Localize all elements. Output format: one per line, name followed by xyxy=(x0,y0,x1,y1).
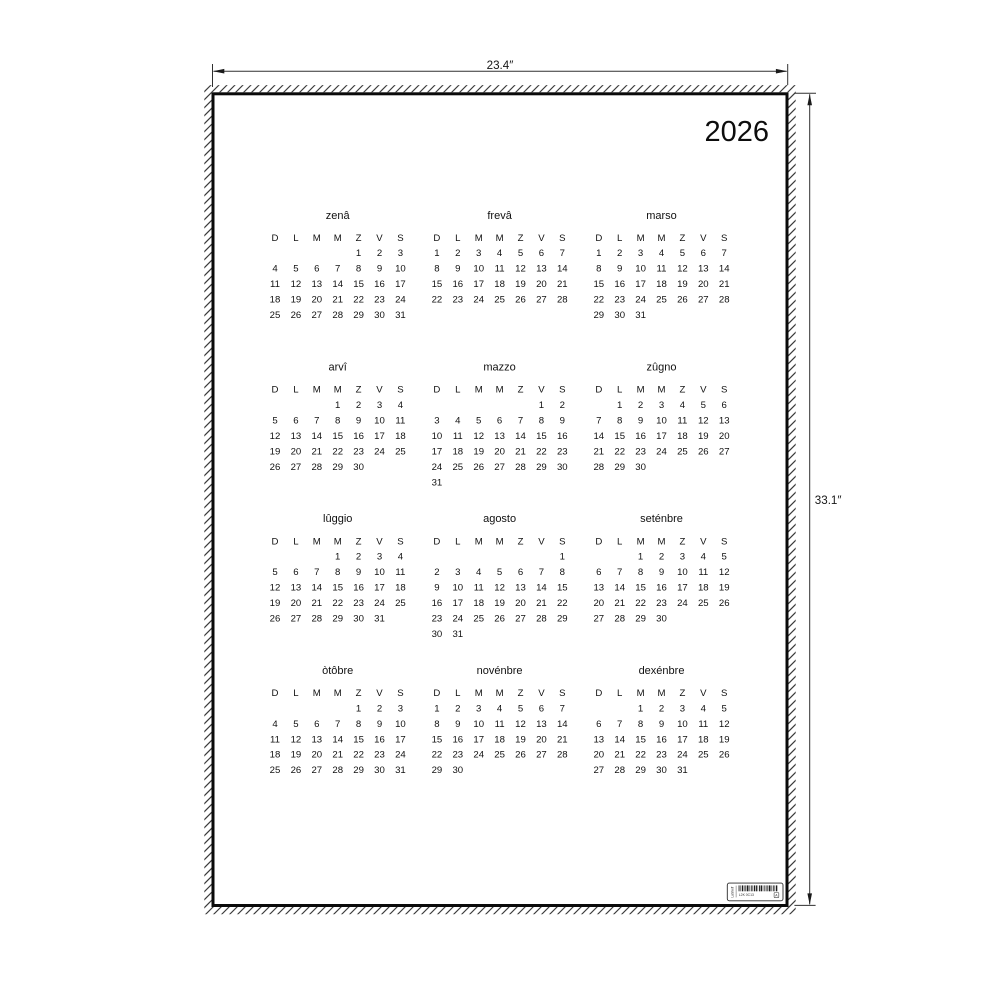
svg-text:13: 13 xyxy=(719,415,730,426)
svg-text:L: L xyxy=(455,385,461,396)
svg-text:22: 22 xyxy=(536,446,547,457)
svg-text:5: 5 xyxy=(722,552,727,563)
svg-text:D: D xyxy=(595,233,602,244)
svg-text:Z: Z xyxy=(679,233,685,244)
svg-text:V: V xyxy=(376,233,383,244)
svg-text:19: 19 xyxy=(515,279,526,290)
svg-text:V: V xyxy=(700,233,707,244)
svg-text:6: 6 xyxy=(596,719,601,730)
svg-text:S: S xyxy=(721,233,727,244)
svg-text:13: 13 xyxy=(536,719,547,730)
svg-text:12: 12 xyxy=(270,431,281,442)
svg-text:Z: Z xyxy=(356,233,362,244)
svg-text:25: 25 xyxy=(677,446,688,457)
svg-text:Z: Z xyxy=(356,385,362,396)
svg-text:Z: Z xyxy=(679,385,685,396)
svg-text:28: 28 xyxy=(536,614,547,625)
svg-text:16: 16 xyxy=(374,279,385,290)
svg-text:7: 7 xyxy=(314,415,319,426)
svg-text:25: 25 xyxy=(698,750,709,761)
svg-text:6: 6 xyxy=(314,264,319,275)
svg-text:marso: marso xyxy=(646,210,677,222)
svg-text:14: 14 xyxy=(515,431,526,442)
svg-text:4: 4 xyxy=(398,552,404,563)
svg-text:M: M xyxy=(475,385,483,396)
svg-text:8: 8 xyxy=(434,719,439,730)
svg-text:19: 19 xyxy=(473,446,484,457)
svg-text:10: 10 xyxy=(374,415,385,426)
svg-text:1: 1 xyxy=(539,400,544,411)
svg-text:L: L xyxy=(293,233,299,244)
svg-text:17: 17 xyxy=(395,734,406,745)
svg-text:5: 5 xyxy=(293,719,298,730)
svg-text:27: 27 xyxy=(311,310,322,321)
svg-text:23: 23 xyxy=(656,750,667,761)
svg-text:12: 12 xyxy=(291,734,302,745)
svg-text:19: 19 xyxy=(698,431,709,442)
svg-text:21: 21 xyxy=(614,750,625,761)
svg-text:24: 24 xyxy=(635,295,646,306)
svg-text:L: L xyxy=(617,536,623,547)
svg-text:22: 22 xyxy=(635,750,646,761)
svg-text:8: 8 xyxy=(539,415,544,426)
svg-text:D: D xyxy=(272,233,279,244)
svg-text:10: 10 xyxy=(374,567,385,578)
svg-text:16: 16 xyxy=(452,734,463,745)
svg-text:4: 4 xyxy=(455,415,461,426)
svg-text:V: V xyxy=(376,688,383,699)
svg-text:33.1″: 33.1″ xyxy=(815,494,842,507)
svg-text:D: D xyxy=(272,688,279,699)
svg-text:10: 10 xyxy=(656,415,667,426)
svg-text:16: 16 xyxy=(656,734,667,745)
svg-text:2026: 2026 xyxy=(704,116,769,148)
svg-text:29: 29 xyxy=(593,310,604,321)
svg-text:23: 23 xyxy=(432,614,443,625)
svg-text:10: 10 xyxy=(635,264,646,275)
svg-text:27: 27 xyxy=(536,750,547,761)
svg-text:31: 31 xyxy=(395,310,406,321)
svg-text:16: 16 xyxy=(452,279,463,290)
svg-text:3: 3 xyxy=(377,400,382,411)
svg-text:16: 16 xyxy=(635,431,646,442)
svg-text:S: S xyxy=(397,385,403,396)
svg-text:7: 7 xyxy=(335,264,340,275)
svg-text:24: 24 xyxy=(374,598,385,609)
svg-text:12: 12 xyxy=(515,719,526,730)
svg-text:2: 2 xyxy=(455,248,460,259)
svg-text:3: 3 xyxy=(398,703,403,714)
svg-text:27: 27 xyxy=(593,765,604,776)
svg-text:18: 18 xyxy=(270,295,281,306)
svg-text:1: 1 xyxy=(434,703,439,714)
svg-text:7: 7 xyxy=(596,415,601,426)
svg-text:M: M xyxy=(313,536,321,547)
svg-text:28: 28 xyxy=(311,462,322,473)
svg-text:M: M xyxy=(637,688,645,699)
svg-text:M: M xyxy=(637,536,645,547)
svg-text:14: 14 xyxy=(593,431,604,442)
svg-text:S: S xyxy=(721,688,727,699)
svg-text:Z: Z xyxy=(356,536,362,547)
svg-text:25: 25 xyxy=(270,765,281,776)
svg-text:7: 7 xyxy=(560,703,565,714)
svg-text:29: 29 xyxy=(353,765,364,776)
svg-text:18: 18 xyxy=(677,431,688,442)
svg-text:20: 20 xyxy=(311,750,322,761)
svg-text:31: 31 xyxy=(677,765,688,776)
svg-text:L2K 0C13: L2K 0C13 xyxy=(739,893,754,897)
svg-text:20: 20 xyxy=(593,750,604,761)
svg-text:3: 3 xyxy=(680,703,685,714)
svg-text:14: 14 xyxy=(332,279,343,290)
svg-text:6: 6 xyxy=(293,415,298,426)
svg-text:18: 18 xyxy=(270,750,281,761)
svg-text:20: 20 xyxy=(698,279,709,290)
svg-text:12: 12 xyxy=(291,279,302,290)
svg-text:23: 23 xyxy=(656,598,667,609)
svg-text:5: 5 xyxy=(272,567,277,578)
svg-text:15: 15 xyxy=(432,734,443,745)
svg-text:17: 17 xyxy=(374,583,385,594)
svg-text:M: M xyxy=(313,688,321,699)
svg-text:seténbre: seténbre xyxy=(640,513,683,525)
svg-text:M: M xyxy=(334,385,342,396)
svg-text:15: 15 xyxy=(614,431,625,442)
svg-text:26: 26 xyxy=(473,462,484,473)
svg-text:24: 24 xyxy=(473,295,484,306)
svg-text:24: 24 xyxy=(432,462,443,473)
svg-text:29: 29 xyxy=(635,614,646,625)
svg-text:Z: Z xyxy=(679,688,685,699)
svg-text:S: S xyxy=(559,536,565,547)
svg-text:23: 23 xyxy=(614,295,625,306)
svg-text:18: 18 xyxy=(473,598,484,609)
svg-text:14: 14 xyxy=(311,431,322,442)
svg-text:26: 26 xyxy=(270,614,281,625)
svg-text:10: 10 xyxy=(677,719,688,730)
svg-text:12: 12 xyxy=(473,431,484,442)
svg-text:11: 11 xyxy=(474,583,484,594)
svg-text:D: D xyxy=(595,688,602,699)
svg-text:15: 15 xyxy=(593,279,604,290)
svg-text:22: 22 xyxy=(635,598,646,609)
svg-text:24: 24 xyxy=(677,598,688,609)
svg-text:31: 31 xyxy=(635,310,646,321)
svg-text:4: 4 xyxy=(701,703,707,714)
svg-text:Z: Z xyxy=(518,536,524,547)
svg-text:10: 10 xyxy=(395,719,406,730)
svg-text:15: 15 xyxy=(353,734,364,745)
svg-text:2: 2 xyxy=(455,703,460,714)
svg-text:30: 30 xyxy=(557,462,568,473)
svg-text:28: 28 xyxy=(593,462,604,473)
svg-text:agosto: agosto xyxy=(483,513,516,525)
svg-text:16: 16 xyxy=(614,279,625,290)
svg-text:4: 4 xyxy=(497,703,503,714)
svg-text:3: 3 xyxy=(476,703,481,714)
svg-text:L: L xyxy=(455,233,461,244)
svg-text:27: 27 xyxy=(291,614,302,625)
svg-text:23: 23 xyxy=(374,750,385,761)
svg-text:23: 23 xyxy=(635,446,646,457)
svg-text:8: 8 xyxy=(356,719,361,730)
svg-text:14: 14 xyxy=(557,264,568,275)
svg-text:26: 26 xyxy=(515,750,526,761)
svg-text:11: 11 xyxy=(698,719,708,730)
svg-text:1: 1 xyxy=(356,248,361,259)
svg-text:D: D xyxy=(433,536,440,547)
svg-text:mazzo: mazzo xyxy=(483,362,515,374)
svg-text:7: 7 xyxy=(722,248,727,259)
svg-text:16: 16 xyxy=(557,431,568,442)
svg-text:6: 6 xyxy=(596,567,601,578)
svg-text:21: 21 xyxy=(311,598,322,609)
svg-text:M: M xyxy=(334,688,342,699)
svg-text:8: 8 xyxy=(596,264,601,275)
svg-text:V: V xyxy=(376,536,383,547)
svg-text:7: 7 xyxy=(335,719,340,730)
svg-text:Z: Z xyxy=(679,536,685,547)
svg-text:12: 12 xyxy=(698,415,709,426)
svg-text:V: V xyxy=(538,688,545,699)
svg-text:26: 26 xyxy=(677,295,688,306)
svg-text:18: 18 xyxy=(395,583,406,594)
svg-text:7: 7 xyxy=(518,415,523,426)
svg-text:26: 26 xyxy=(291,765,302,776)
svg-text:26: 26 xyxy=(270,462,281,473)
svg-text:23: 23 xyxy=(374,295,385,306)
svg-text:27: 27 xyxy=(494,462,505,473)
svg-text:11: 11 xyxy=(395,415,405,426)
svg-text:21: 21 xyxy=(536,598,547,609)
svg-text:zenâ: zenâ xyxy=(326,210,351,222)
svg-text:5: 5 xyxy=(518,703,523,714)
svg-text:31: 31 xyxy=(452,629,463,640)
svg-text:27: 27 xyxy=(311,765,322,776)
svg-text:4: 4 xyxy=(272,719,278,730)
svg-text:M: M xyxy=(475,688,483,699)
svg-text:13: 13 xyxy=(536,264,547,275)
svg-text:S: S xyxy=(559,233,565,244)
svg-text:3: 3 xyxy=(680,552,685,563)
svg-text:6: 6 xyxy=(293,567,298,578)
svg-text:24: 24 xyxy=(452,614,463,625)
svg-text:8: 8 xyxy=(638,719,643,730)
svg-text:20: 20 xyxy=(494,446,505,457)
svg-text:2: 2 xyxy=(617,248,622,259)
svg-text:21: 21 xyxy=(332,295,343,306)
svg-text:26: 26 xyxy=(719,750,730,761)
svg-text:5: 5 xyxy=(722,703,727,714)
svg-text:9: 9 xyxy=(617,264,622,275)
svg-text:18: 18 xyxy=(395,431,406,442)
svg-text:4: 4 xyxy=(398,400,404,411)
svg-text:22: 22 xyxy=(353,750,364,761)
svg-text:15: 15 xyxy=(635,583,646,594)
svg-text:21: 21 xyxy=(614,598,625,609)
svg-text:frevâ: frevâ xyxy=(487,210,512,222)
svg-text:8: 8 xyxy=(335,415,340,426)
svg-text:20: 20 xyxy=(536,279,547,290)
svg-text:26: 26 xyxy=(494,614,505,625)
svg-text:28: 28 xyxy=(332,765,343,776)
svg-text:24: 24 xyxy=(656,446,667,457)
svg-text:11: 11 xyxy=(270,279,280,290)
svg-text:6: 6 xyxy=(497,415,502,426)
svg-text:11: 11 xyxy=(657,264,667,275)
svg-text:D: D xyxy=(595,536,602,547)
svg-text:30: 30 xyxy=(452,765,463,776)
svg-text:8: 8 xyxy=(356,264,361,275)
svg-text:17: 17 xyxy=(473,734,484,745)
svg-text:25: 25 xyxy=(494,750,505,761)
svg-text:1: 1 xyxy=(356,703,361,714)
svg-text:lûggio: lûggio xyxy=(323,513,352,525)
svg-text:27: 27 xyxy=(719,446,730,457)
svg-text:6: 6 xyxy=(314,719,319,730)
svg-text:òtôbre: òtôbre xyxy=(322,665,353,677)
svg-text:14: 14 xyxy=(536,583,547,594)
svg-text:28: 28 xyxy=(311,614,322,625)
svg-text:22: 22 xyxy=(557,598,568,609)
svg-text:5: 5 xyxy=(293,264,298,275)
svg-text:S: S xyxy=(559,385,565,396)
svg-text:6: 6 xyxy=(518,567,523,578)
svg-text:17: 17 xyxy=(395,279,406,290)
svg-text:20: 20 xyxy=(593,598,604,609)
svg-text:3: 3 xyxy=(398,248,403,259)
svg-text:23: 23 xyxy=(353,446,364,457)
svg-text:Z: Z xyxy=(356,688,362,699)
svg-text:23: 23 xyxy=(557,446,568,457)
svg-text:12: 12 xyxy=(270,583,281,594)
svg-text:1: 1 xyxy=(638,552,643,563)
svg-text:28: 28 xyxy=(719,295,730,306)
svg-text:9: 9 xyxy=(560,415,565,426)
svg-text:2: 2 xyxy=(434,567,439,578)
svg-text:M: M xyxy=(313,385,321,396)
svg-text:29: 29 xyxy=(557,614,568,625)
svg-text:27: 27 xyxy=(515,614,526,625)
svg-text:17: 17 xyxy=(432,446,443,457)
svg-text:29: 29 xyxy=(332,614,343,625)
svg-text:7: 7 xyxy=(560,248,565,259)
svg-text:16: 16 xyxy=(353,431,364,442)
svg-text:3: 3 xyxy=(377,552,382,563)
svg-text:15: 15 xyxy=(332,583,343,594)
svg-text:13: 13 xyxy=(494,431,505,442)
svg-text:25: 25 xyxy=(395,598,406,609)
svg-text:S: S xyxy=(721,536,727,547)
svg-text:24: 24 xyxy=(395,750,406,761)
svg-text:28: 28 xyxy=(515,462,526,473)
svg-text:6: 6 xyxy=(701,248,706,259)
svg-text:22: 22 xyxy=(332,446,343,457)
svg-text:12: 12 xyxy=(677,264,688,275)
svg-text:25: 25 xyxy=(452,462,463,473)
svg-text:22: 22 xyxy=(332,598,343,609)
svg-text:16: 16 xyxy=(353,583,364,594)
svg-text:21: 21 xyxy=(515,446,526,457)
svg-text:21: 21 xyxy=(332,750,343,761)
svg-text:18: 18 xyxy=(698,583,709,594)
svg-text:18: 18 xyxy=(494,279,505,290)
svg-text:11: 11 xyxy=(677,415,687,426)
svg-text:3: 3 xyxy=(659,400,664,411)
svg-text:22: 22 xyxy=(432,750,443,761)
svg-text:M: M xyxy=(334,536,342,547)
svg-text:13: 13 xyxy=(291,583,302,594)
svg-text:30: 30 xyxy=(374,765,385,776)
svg-text:2: 2 xyxy=(377,703,382,714)
svg-text:9: 9 xyxy=(455,264,460,275)
svg-text:19: 19 xyxy=(291,295,302,306)
svg-text:L: L xyxy=(617,385,623,396)
svg-text:19: 19 xyxy=(515,734,526,745)
svg-text:22: 22 xyxy=(614,446,625,457)
svg-text:2: 2 xyxy=(356,552,361,563)
svg-text:M: M xyxy=(313,233,321,244)
svg-text:28: 28 xyxy=(557,295,568,306)
svg-text:22: 22 xyxy=(593,295,604,306)
svg-text:17: 17 xyxy=(677,583,688,594)
svg-text:M: M xyxy=(658,385,666,396)
svg-text:2: 2 xyxy=(377,248,382,259)
svg-text:7: 7 xyxy=(314,567,319,578)
svg-text:D: D xyxy=(433,233,440,244)
svg-text:2: 2 xyxy=(659,703,664,714)
svg-text:25: 25 xyxy=(494,295,505,306)
svg-text:M: M xyxy=(496,385,504,396)
svg-text:L: L xyxy=(293,688,299,699)
svg-text:14: 14 xyxy=(614,734,625,745)
svg-text:11: 11 xyxy=(270,734,280,745)
svg-text:4: 4 xyxy=(701,552,707,563)
svg-text:21: 21 xyxy=(593,446,604,457)
svg-text:L: L xyxy=(617,233,623,244)
svg-text:11: 11 xyxy=(698,567,708,578)
svg-text:2: 2 xyxy=(560,400,565,411)
svg-text:M: M xyxy=(637,385,645,396)
svg-text:15: 15 xyxy=(432,279,443,290)
svg-text:20: 20 xyxy=(291,446,302,457)
svg-text:29: 29 xyxy=(635,765,646,776)
svg-text:23.4″: 23.4″ xyxy=(487,59,514,72)
svg-text:5: 5 xyxy=(497,567,502,578)
svg-text:V: V xyxy=(700,536,707,547)
svg-text:9: 9 xyxy=(377,719,382,730)
svg-text:10: 10 xyxy=(677,567,688,578)
svg-text:9: 9 xyxy=(434,583,439,594)
svg-text:30: 30 xyxy=(656,765,667,776)
svg-text:29: 29 xyxy=(536,462,547,473)
svg-text:21: 21 xyxy=(719,279,730,290)
svg-text:19: 19 xyxy=(494,598,505,609)
svg-text:V: V xyxy=(700,385,707,396)
svg-text:3: 3 xyxy=(455,567,460,578)
svg-text:21: 21 xyxy=(557,279,568,290)
svg-text:8: 8 xyxy=(560,567,565,578)
svg-text:19: 19 xyxy=(291,750,302,761)
svg-text:Z: Z xyxy=(518,688,524,699)
svg-text:M: M xyxy=(658,688,666,699)
svg-text:25: 25 xyxy=(270,310,281,321)
svg-text:8: 8 xyxy=(434,264,439,275)
svg-text:14: 14 xyxy=(332,734,343,745)
svg-text:5: 5 xyxy=(518,248,523,259)
svg-text:S: S xyxy=(397,536,403,547)
